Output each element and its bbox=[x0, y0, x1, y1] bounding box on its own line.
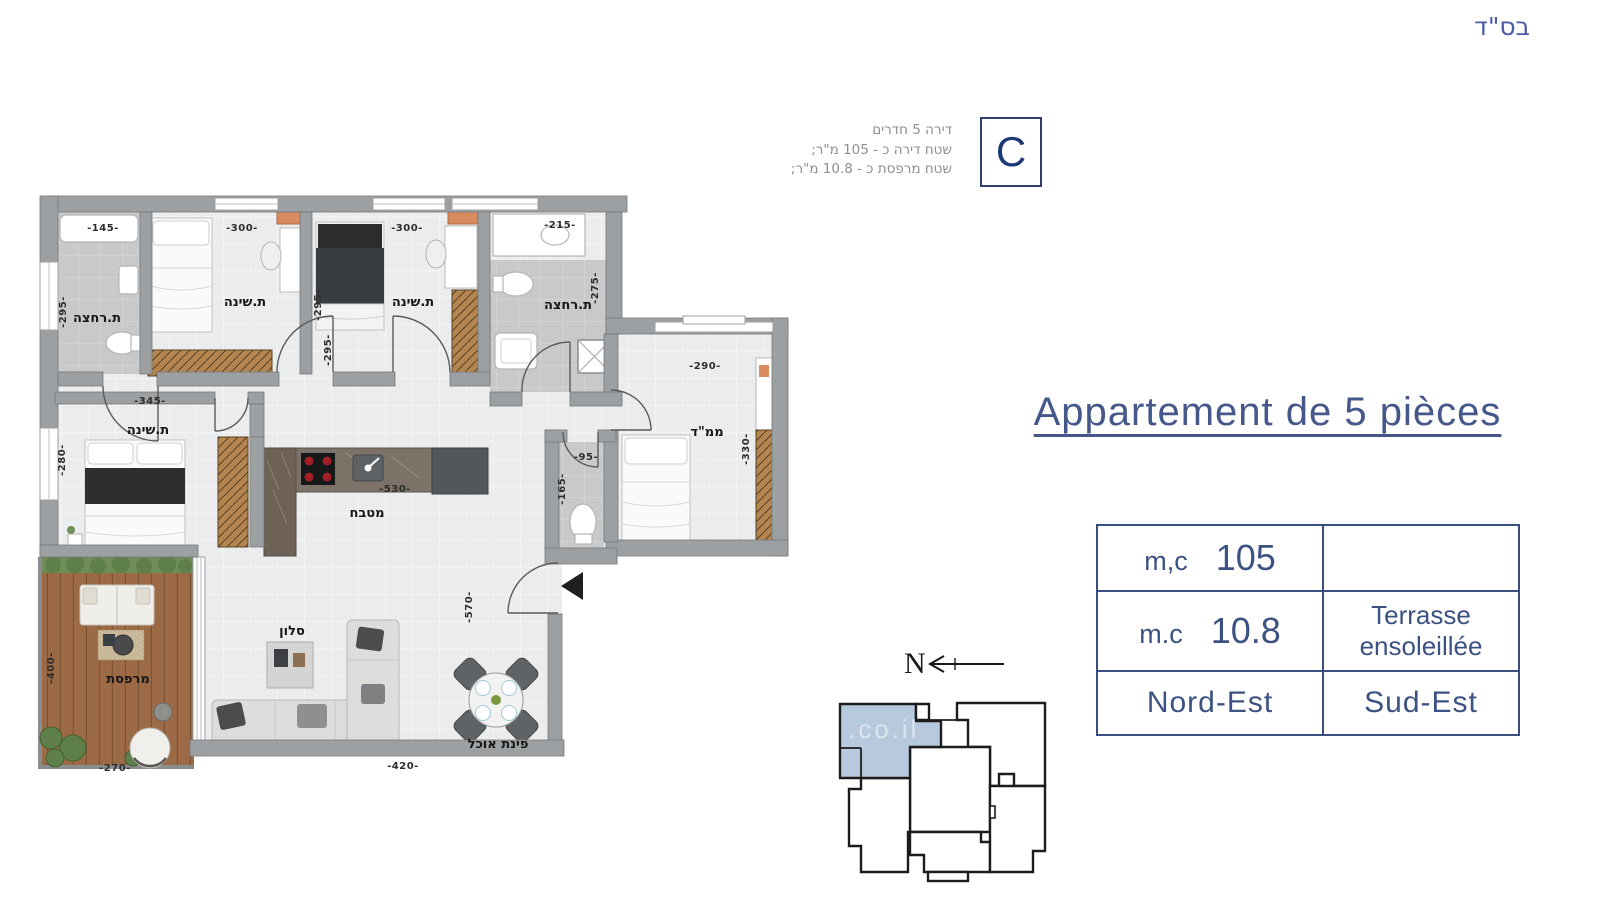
terrace-area-cell: m.c 10.8 bbox=[1097, 591, 1323, 671]
balcony-sliding-door bbox=[193, 557, 205, 741]
north-arrow-line bbox=[930, 656, 1004, 672]
dim-270: -270- bbox=[99, 763, 131, 774]
unit-description-line3: שטח מרפסת כ - 10.8 מ"ר; bbox=[690, 160, 952, 180]
label-safe-room: ממ"ד bbox=[690, 425, 723, 440]
dim-295c: -295- bbox=[323, 334, 334, 366]
spec-table: m,c 105 m.c 10.8 Terrasse ensoleillée No… bbox=[1096, 524, 1520, 736]
orientation-cell-1: Nord-Est bbox=[1097, 671, 1323, 735]
dim-330: -330- bbox=[741, 433, 752, 465]
entry-arrow bbox=[561, 572, 583, 600]
window-left-1 bbox=[40, 262, 58, 330]
bsd-text: בס"ד bbox=[1420, 12, 1530, 41]
dim-345: -345- bbox=[134, 396, 166, 407]
label-living-room: סלון bbox=[279, 624, 305, 639]
label-bathroom-2: ת.רחצה bbox=[544, 298, 592, 313]
key-plan-unit-bottomleft bbox=[849, 778, 910, 872]
terrace-area-value: 10.8 bbox=[1211, 610, 1281, 652]
bed-bedroom-1 bbox=[150, 218, 212, 332]
label-balcony: מרפסת bbox=[106, 672, 150, 687]
key-plan-unit-bottomcenter bbox=[910, 832, 990, 872]
key-plan-watermark: .co.il bbox=[848, 714, 919, 744]
coffee-table bbox=[267, 642, 313, 688]
window-left-2 bbox=[40, 428, 58, 500]
bed-bedroom-2 bbox=[316, 222, 384, 330]
floor-plan: ת.רחצה ת.שינה ת.שינה ת.רחצה ממ"ד ת.שינה … bbox=[35, 190, 795, 785]
label-bathroom-1: ת.רחצה bbox=[73, 311, 121, 326]
key-plan-unit-central bbox=[910, 747, 990, 832]
key-plan-bump bbox=[990, 806, 995, 818]
balcony-lounger bbox=[80, 585, 154, 625]
window-top-3 bbox=[452, 198, 538, 210]
label-bedroom-2: ת.שינה bbox=[392, 295, 434, 310]
dim-95: -95- bbox=[574, 452, 598, 463]
unit-description: דירה 5 חדרים שטח דירה כ - 105 מ"ר; שטח מ… bbox=[690, 121, 952, 180]
dim-420: -420- bbox=[387, 761, 419, 772]
unit-description-line2: שטח דירה כ - 105 מ"ר; bbox=[690, 141, 952, 161]
label-dining: פינת אוכל bbox=[468, 737, 529, 752]
page-title: Appartement de 5 pièces bbox=[1010, 390, 1525, 435]
unit-letter: C bbox=[996, 131, 1026, 173]
dim-295a: -295- bbox=[58, 296, 69, 328]
area-cell: m,c 105 bbox=[1097, 525, 1323, 591]
area-label: m,c bbox=[1144, 546, 1188, 577]
dim-530: -530- bbox=[379, 484, 411, 495]
dim-145: -145- bbox=[87, 223, 119, 234]
balcony-deck bbox=[38, 555, 194, 769]
label-master-bedroom: ת.שינה bbox=[127, 423, 169, 438]
balcony-table bbox=[98, 630, 144, 660]
dim-215: -215- bbox=[544, 220, 576, 231]
terrace-cell: Terrasse ensoleillée bbox=[1323, 591, 1519, 671]
window-top-1 bbox=[215, 198, 278, 210]
unit-letter-badge: C bbox=[980, 117, 1042, 187]
master-bed bbox=[67, 440, 185, 552]
key-plan-unit-bottomright bbox=[990, 786, 1045, 872]
balcony-wateringcan bbox=[154, 703, 172, 721]
dim-275: -275- bbox=[590, 272, 601, 304]
north-arrow: N bbox=[876, 642, 1011, 684]
dim-570: -570- bbox=[464, 591, 475, 623]
dim-400: -400- bbox=[46, 652, 57, 684]
window-top-2 bbox=[373, 198, 445, 210]
dim-165: -165- bbox=[557, 473, 568, 505]
apartment-brochure-page: בס"ד דירה 5 חדרים שטח דירה כ - 105 מ"ר; … bbox=[0, 0, 1600, 900]
balcony-hedge bbox=[42, 555, 194, 574]
label-bedroom-1: ת.שינה bbox=[224, 295, 266, 310]
area-value: 105 bbox=[1216, 537, 1276, 579]
orientation-cell-2: Sud-Est bbox=[1323, 671, 1519, 735]
dim-295b: -295- bbox=[313, 289, 324, 321]
key-plan-lobby bbox=[928, 872, 968, 881]
empty-cell bbox=[1323, 525, 1519, 591]
terrace-area-label: m.c bbox=[1139, 619, 1183, 650]
kitchen-sink bbox=[353, 455, 383, 481]
wardrobe-master bbox=[218, 437, 248, 547]
unit-description-line1: דירה 5 חדרים bbox=[690, 121, 952, 141]
dim-300b: -300- bbox=[391, 223, 423, 234]
building-key-plan: .co.il bbox=[836, 690, 1050, 886]
dim-290: -290- bbox=[689, 361, 721, 372]
dim-300a: -300- bbox=[226, 223, 258, 234]
label-kitchen: מטבח bbox=[349, 506, 384, 521]
north-label: N bbox=[904, 647, 926, 680]
dim-280: -280- bbox=[57, 444, 68, 476]
stove bbox=[301, 453, 335, 485]
